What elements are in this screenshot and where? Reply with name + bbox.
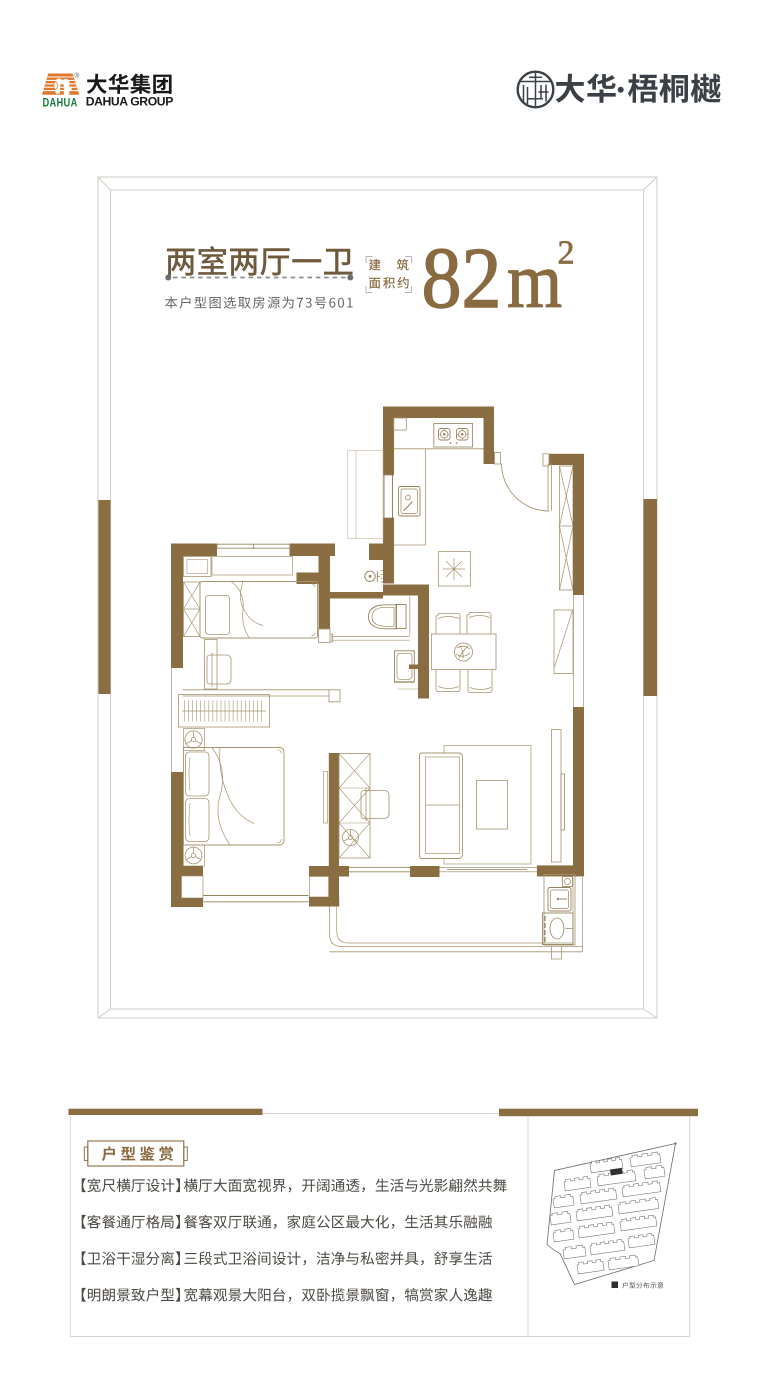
svg-text:DAHUA GROUP: DAHUA GROUP bbox=[86, 95, 174, 109]
svg-text:82: 82 bbox=[422, 229, 502, 326]
svg-text:2: 2 bbox=[558, 235, 575, 272]
svg-text:m: m bbox=[507, 237, 562, 324]
svg-text:DAHUA: DAHUA bbox=[43, 97, 78, 110]
svg-text:®: ® bbox=[75, 72, 80, 80]
